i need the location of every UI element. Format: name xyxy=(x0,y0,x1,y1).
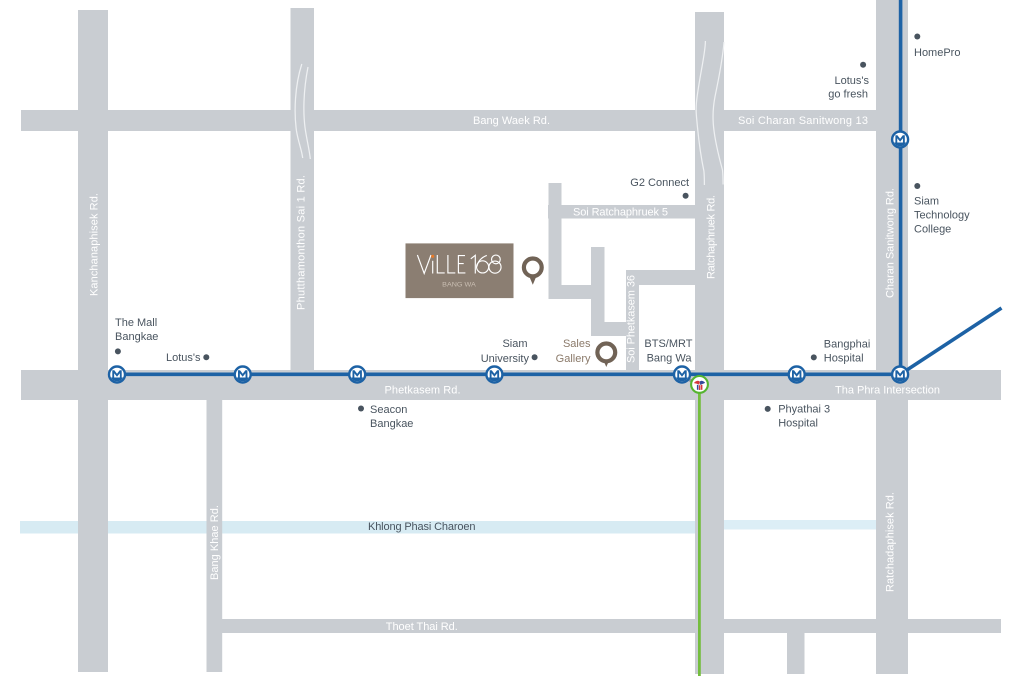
svg-text:Bang Khae Rd.: Bang Khae Rd. xyxy=(209,505,221,580)
svg-text:Ratchaphruek Rd.: Ratchaphruek Rd. xyxy=(705,195,717,279)
svg-text:Charan Sanitwong Rd.: Charan Sanitwong Rd. xyxy=(885,188,897,298)
svg-text:Bang Wa: Bang Wa xyxy=(647,353,693,365)
svg-text:Siam: Siam xyxy=(914,196,939,208)
svg-text:College: College xyxy=(914,224,951,236)
svg-text:Phutthamonthon Sai 1 Rd.: Phutthamonthon Sai 1 Rd. xyxy=(296,175,308,310)
svg-text:Siam: Siam xyxy=(502,338,527,350)
svg-text:go fresh: go fresh xyxy=(828,89,868,101)
svg-text:Bangkae: Bangkae xyxy=(370,418,413,430)
svg-text:Lotus's: Lotus's xyxy=(834,75,869,87)
svg-text:Bangphai: Bangphai xyxy=(824,339,871,351)
svg-text:University: University xyxy=(481,353,530,365)
svg-text:Tha Phra Intersection: Tha Phra Intersection xyxy=(835,385,940,397)
svg-text:Seacon: Seacon xyxy=(370,404,407,416)
svg-text:Kanchanaphisek Rd.: Kanchanaphisek Rd. xyxy=(88,193,100,296)
svg-text:Thoet Thai Rd.: Thoet Thai Rd. xyxy=(386,621,458,633)
svg-text:Sales: Sales xyxy=(563,338,591,350)
svg-text:Gallery: Gallery xyxy=(556,353,591,365)
svg-text:BANG WA: BANG WA xyxy=(442,283,476,289)
svg-text:Ratchadaphisek Rd.: Ratchadaphisek Rd. xyxy=(885,492,897,592)
svg-text:BTS/MRT: BTS/MRT xyxy=(644,338,692,350)
svg-text:Hospital: Hospital xyxy=(778,418,818,430)
svg-text:Hospital: Hospital xyxy=(824,353,864,365)
svg-text:G2 Connect: G2 Connect xyxy=(630,177,689,189)
svg-text:Khlong Phasi Charoen: Khlong Phasi Charoen xyxy=(368,521,476,533)
svg-text:Phyathai 3: Phyathai 3 xyxy=(778,404,830,416)
svg-text:The Mall: The Mall xyxy=(115,317,157,329)
svg-text:Soi Charan Sanitwong 13: Soi Charan Sanitwong 13 xyxy=(738,115,868,127)
svg-text:Soi Ratchaphruek 5: Soi Ratchaphruek 5 xyxy=(573,207,668,219)
svg-text:Lotus's: Lotus's xyxy=(166,352,201,364)
svg-text:Technology: Technology xyxy=(914,210,970,222)
svg-text:Bangkae: Bangkae xyxy=(115,331,158,343)
svg-text:Phetkasem Rd.: Phetkasem Rd. xyxy=(385,385,461,397)
svg-text:Bang Waek Rd.: Bang Waek Rd. xyxy=(473,115,550,127)
svg-text:Soi Phetkasem 36: Soi Phetkasem 36 xyxy=(625,275,637,363)
svg-text:HomePro: HomePro xyxy=(914,47,960,59)
